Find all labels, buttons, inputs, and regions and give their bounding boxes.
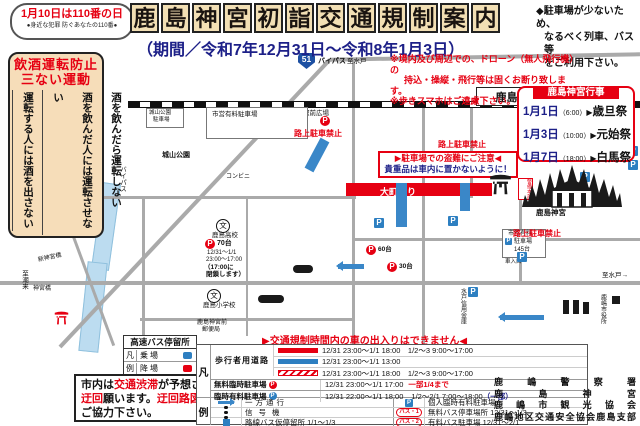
caution-title: ▶駐車場での盗難にご注意◀ — [380, 153, 516, 164]
police-badge: 1月10日は110番の日 ●身近な犯罪 防ぐあなたの110番● — [10, 3, 134, 40]
road-h2 — [352, 238, 640, 241]
bus-stop-1-icon: バス・1 — [396, 408, 422, 417]
free-parking-icon: P — [387, 262, 397, 272]
title-char: 通 — [347, 3, 376, 33]
event-date: 1月3日 — [523, 129, 559, 141]
events-title: 鹿島神宮行事 — [533, 86, 619, 99]
free-parking-icon: P — [269, 381, 277, 389]
campaign-title2: 三ない運動 — [12, 72, 100, 87]
free-parking-label: 無料臨時駐車場 — [214, 379, 267, 390]
paid-parking-icon: P — [505, 238, 512, 245]
legend-row: 12/31 23:00～1/1 13:00 — [274, 357, 587, 369]
shrine-events-box: 鹿島神宮行事 1月1日（6:00）▶歳旦祭 1月3日（10:00）▶元始祭 1月… — [517, 86, 635, 162]
legend-key-rei: 例 — [197, 398, 211, 425]
org-name: 鹿嶋地区交通安全協会鹿島支部 — [494, 412, 636, 424]
legend-key: 凡 — [124, 350, 137, 361]
route-bus-stop-icon — [223, 419, 230, 426]
free-parking-extra: 一部1/4まで — [403, 379, 448, 390]
event-name: 歳旦祭 — [593, 106, 628, 118]
bus-stop-2-icon: バス・2 — [396, 418, 422, 426]
boarding-mark-icon — [183, 352, 192, 359]
bank-label: 水戸信用金庫 — [458, 288, 466, 324]
event-time: （18:00） — [559, 156, 591, 163]
road-h4 — [140, 318, 355, 321]
torii-icon-red — [54, 311, 69, 325]
road-v2 — [422, 108, 425, 345]
alighting-mark-icon — [183, 365, 192, 372]
pedestrian-road-label: 歩行者用道路 — [211, 345, 274, 376]
campaign-slogans: 酒を飲んだら運転しない 酒を飲んだ人には運転させない 運転する人には酒を出さない — [12, 90, 130, 235]
school-icon: 文 — [207, 289, 221, 303]
alighting-label: 降場 — [137, 363, 183, 374]
event-date: 1月7日 — [523, 152, 559, 164]
one-way-arrow — [500, 315, 544, 320]
event-row: 1月7日（18:00）▶白馬祭 — [523, 147, 633, 170]
notice-text-red: 迂回 — [81, 393, 103, 405]
org-name: 鹿嶋市観光協会 — [494, 400, 636, 412]
free-parking-icon: P — [366, 245, 376, 255]
free-parking-time: 12/31 23:00～1/1 17:00 — [321, 379, 403, 390]
bridge2-label: 神宮橋 — [33, 286, 51, 294]
building-block — [573, 300, 579, 314]
regulated-road-blue-1 — [396, 183, 407, 227]
slogan-3: 運転する人には酒を出さない — [12, 90, 42, 231]
kashima-hs-label: 鹿島高校 — [212, 232, 238, 240]
to-mito-road: 至水戸→ — [602, 272, 628, 280]
signal-label: 信号機 — [242, 408, 394, 417]
express-bus-title: 高速バス停留所 — [124, 336, 196, 349]
regulated-road-blue-2 — [460, 183, 470, 211]
event-time: （6:00） — [559, 110, 587, 117]
event-row: 1月3日（10:00）▶元始祭 — [523, 124, 633, 147]
note-line: ◆駐車場が少ないため、 — [536, 5, 638, 31]
poster: 大町通り 鹿島神宮駅 駅前広場 51 バイパス 至水戸 51 バイパス 至水戸 … — [0, 0, 640, 426]
one-way-label: 一方通行 — [242, 398, 394, 407]
express-bus-row: 凡 乗場 — [124, 349, 196, 362]
building-block — [583, 302, 589, 314]
legend-row: 12/31 23:00～1/1 18:00 1/2～3 9:00～17:00 — [274, 345, 587, 357]
hs-close2: 閉鎖します） — [206, 271, 245, 279]
to-itako-label: 至潮来 — [20, 270, 28, 290]
ped-time3: 12/31 23:00～1/1 18:00 1/2～3 9:00～17:00 — [322, 368, 473, 379]
hs-capacity: 70台 — [217, 240, 232, 248]
title-char: 交 — [316, 3, 345, 33]
building-block — [258, 295, 284, 303]
post-office-label2: 郵便局 — [202, 327, 220, 335]
event-row: 1月1日（6:00）▶歳旦祭 — [523, 101, 633, 124]
conbini-label: コンビニ — [226, 174, 250, 182]
city-parking-label: 市営有料駐車場 — [212, 111, 258, 119]
page-title: 鹿 島 神 宮 初 詣 交 通 規 制 案 内 — [130, 3, 500, 33]
torii-icon — [489, 174, 512, 195]
title-char: 詣 — [285, 3, 314, 33]
legend-key-han: 凡 — [197, 345, 211, 397]
route-bus-stop-label: 路線バス仮停留所 1/1～1/3 — [242, 418, 394, 426]
paid-parking-icon: P — [448, 216, 458, 226]
caution-body: 貴重品は車内に置かないように！ — [380, 164, 516, 174]
paid-parking-icon: P — [405, 399, 413, 407]
hatched-line-icon — [278, 370, 318, 376]
notice-text: 市内は — [81, 379, 114, 391]
shiroyama-park-label: 城山公園 — [162, 152, 190, 160]
express-bus-stop-box: 高速バス停留所 凡 乗場 例 降場 — [123, 335, 197, 375]
paid-parking-icon: P — [517, 252, 527, 262]
red-line-icon — [278, 348, 318, 353]
express-bus-row: 例 降場 — [124, 362, 196, 374]
school-icon: 文 — [216, 219, 230, 233]
road-h3 — [0, 281, 640, 285]
regulated-road-blue-3 — [305, 138, 330, 173]
title-char: 初 — [254, 3, 283, 33]
notice-text: ご協力下さい。 — [81, 407, 158, 419]
free-parking-icon: P — [320, 116, 330, 126]
paid-parking-icon: P — [374, 218, 384, 228]
shiroyama-parking-label2: 駐車場 — [153, 117, 170, 125]
one-way-icon — [218, 401, 234, 404]
ped-time2: 12/31 23:00～1/1 13:00 — [322, 356, 400, 367]
notice-text-red: 迂回路図 — [157, 393, 201, 405]
road-v4 — [142, 196, 145, 336]
building-block — [563, 300, 569, 314]
legend-key: 例 — [124, 363, 137, 374]
title-char: 島 — [161, 3, 190, 33]
event-name: 元始祭 — [596, 129, 631, 141]
title-char: 制 — [409, 3, 438, 33]
one-way-arrow — [338, 264, 364, 269]
badge-line1: 1月10日は110番の日 — [12, 7, 132, 22]
road-h1 — [96, 196, 356, 199]
shrine-label: 鹿島神宮 — [536, 209, 566, 217]
slogan-1: 酒を飲んだら運転しない — [101, 90, 130, 210]
cityhall-label: 鹿嶋市役所 — [598, 294, 606, 324]
title-char: 規 — [378, 3, 407, 33]
road-v5 — [246, 196, 248, 336]
signal-icon — [224, 411, 228, 415]
event-date: 1月1日 — [523, 106, 559, 118]
regulated-road-omachi — [346, 183, 492, 196]
title-char: 神 — [192, 3, 221, 33]
drunk-driving-campaign-box: 飲酒運転防止 三ない運動 酒を飲んだら運転しない 酒を飲んだ人には運転させない … — [8, 52, 104, 238]
ped-time1: 12/31 23:00～1/1 18:00 1/2～3 9:00～17:00 — [322, 345, 473, 356]
title-char: 内 — [471, 3, 500, 33]
cap30-label: 30台 — [399, 263, 413, 271]
kashima-es-label: 鹿島小学校 — [203, 302, 236, 310]
issuing-organizations: 鹿嶋警察署 鹿島神宮 鹿嶋市観光協会 鹿嶋地区交通安全協会鹿島支部 — [494, 377, 636, 423]
no-street-parking-label: 路上駐車禁止 — [513, 228, 561, 239]
title-char: 鹿 — [130, 3, 159, 33]
notice-text: 願います。 — [103, 393, 157, 405]
no-street-parking-label: 路上駐車禁止 — [294, 128, 342, 139]
event-name: 白馬祭 — [596, 152, 631, 164]
event-time: （10:00） — [559, 133, 591, 140]
badge-line2: ●身近な犯罪 防ぐあなたの110番● — [12, 22, 132, 30]
org-name: 鹿嶋警察署 — [494, 377, 636, 389]
paid-parking-icon: P — [468, 287, 478, 297]
no-street-parking-label: 路上駐車禁止 — [438, 139, 486, 150]
notice-text-red: 交通渋滞 — [114, 379, 158, 391]
blue-line-icon — [278, 359, 318, 364]
bridge1-label: 新神宮橋 — [37, 253, 62, 265]
org-name: 鹿島神宮 — [494, 389, 636, 401]
drone-line: ※境内及び周辺での、ドローン（無人飛行機）の — [390, 54, 580, 75]
boarding-label: 乗場 — [137, 350, 183, 361]
slogan-2: 酒を飲んだ人には運転させない — [42, 90, 101, 235]
cap60-label: 60台 — [378, 246, 392, 254]
free-parking-icon: P — [205, 239, 215, 249]
building-block — [293, 265, 313, 273]
title-char: 宮 — [223, 3, 252, 33]
building-block — [612, 296, 620, 304]
cp2-l2: 駐車場 — [514, 239, 532, 247]
campaign-title1: 飲酒運転防止 — [12, 57, 100, 72]
title-char: 案 — [440, 3, 469, 33]
